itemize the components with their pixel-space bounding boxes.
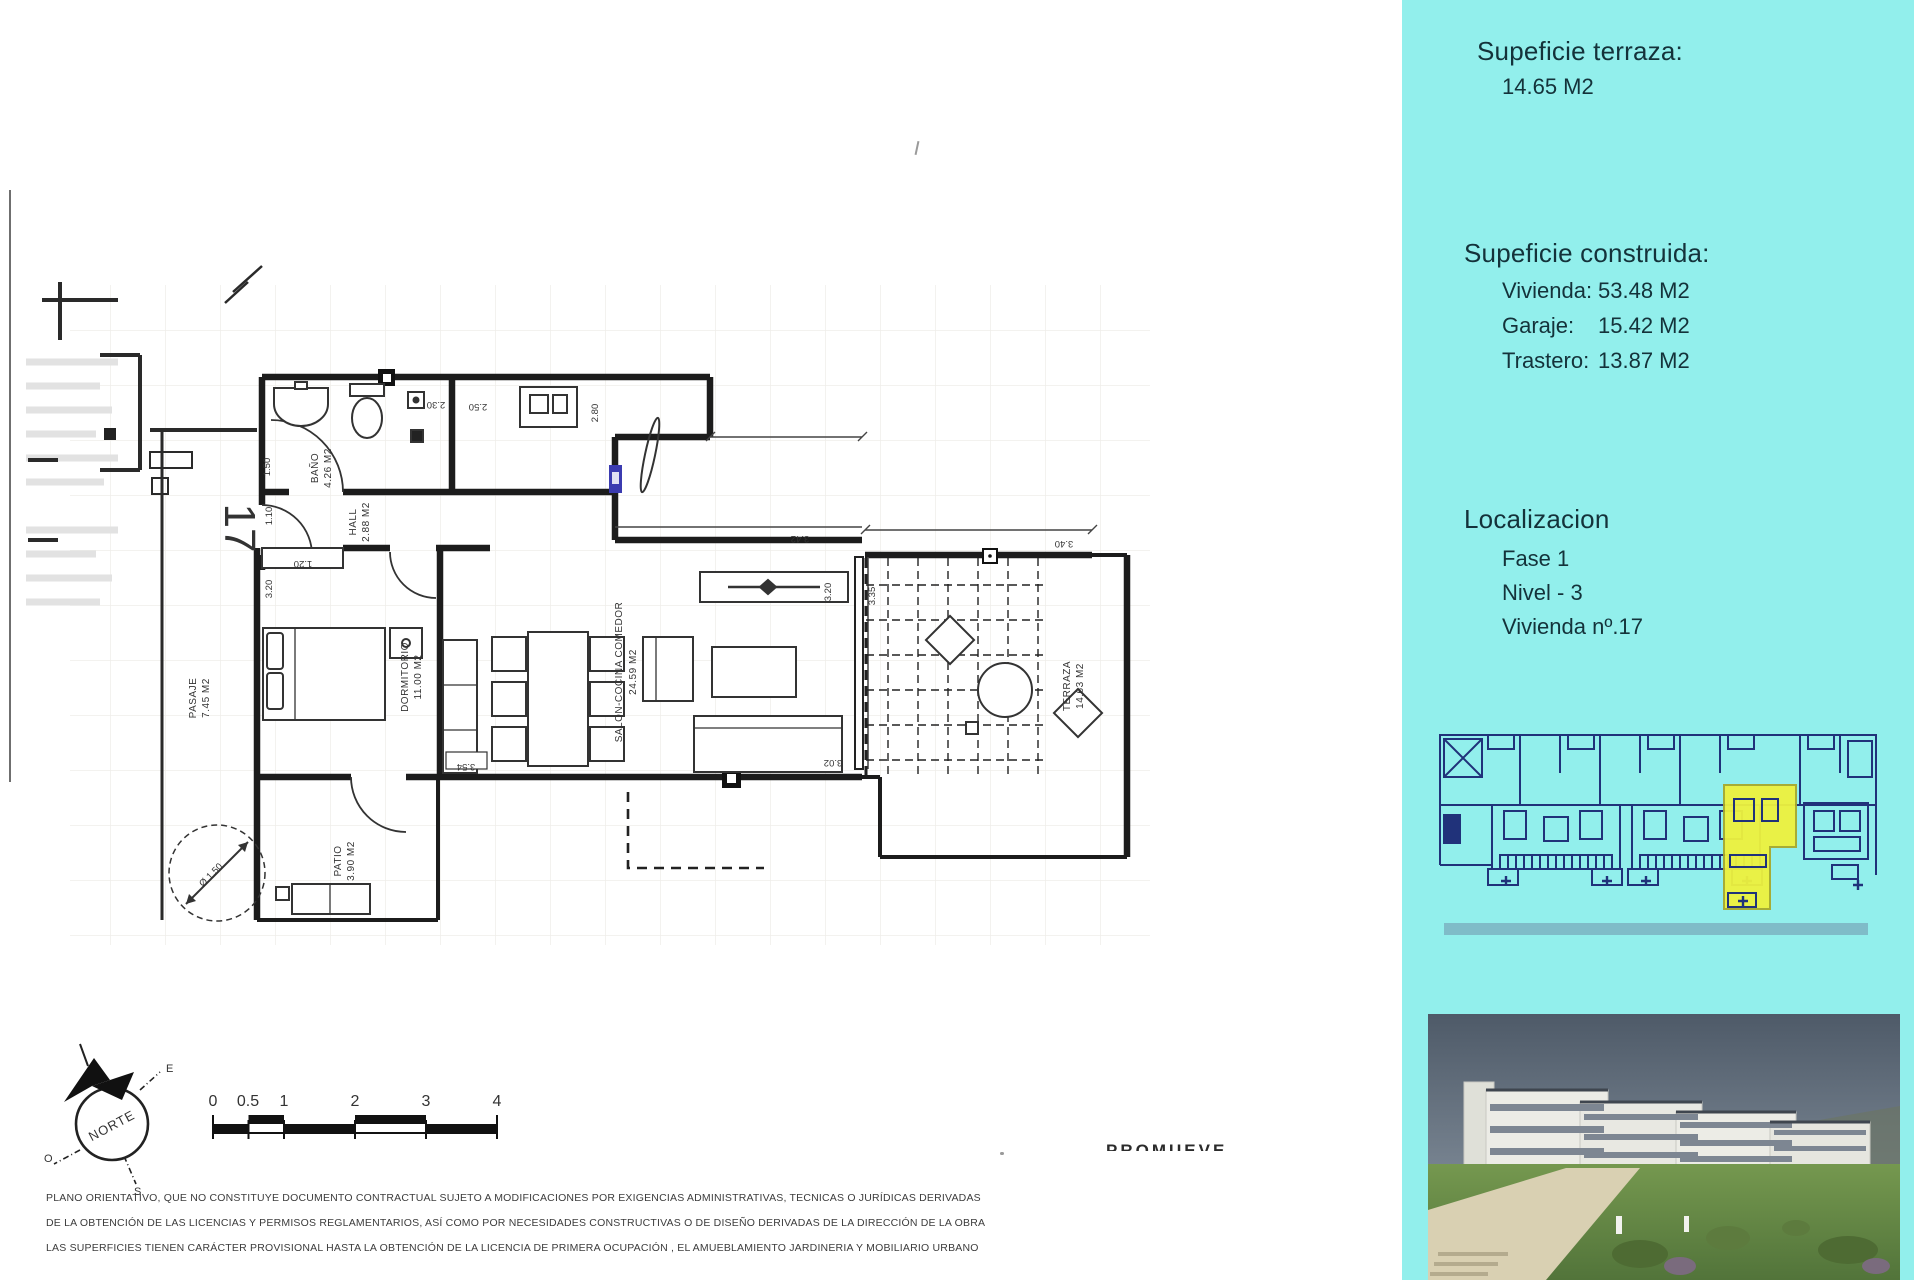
scale-label-3: 3 <box>422 1093 431 1110</box>
dim-120: 1.20 <box>294 558 313 569</box>
row-value: 13.87 M2 <box>1598 348 1690 374</box>
site-road-band <box>1444 923 1868 935</box>
sliding-door <box>855 557 863 769</box>
plan-sheet-page: BAÑO 4.26 M2 HALL 2.88 M2 DORMITORIO 11.… <box>0 0 1920 1280</box>
dim-302: 3.02 <box>824 757 843 768</box>
info-sidebar: Supeficie terraza: 14.65 M2 Supeficie co… <box>1402 0 1914 1280</box>
row-value: 53.48 M2 <box>1598 278 1690 304</box>
dim-354: 3.54 <box>457 761 476 772</box>
room-label-bano: BAÑO <box>308 453 321 483</box>
construida-title: Supeficie construida: <box>1464 238 1710 269</box>
kitchen-counter-top <box>520 387 577 427</box>
room-area-salon: 24.59 M2 <box>628 649 639 695</box>
building-render-image <box>1428 1014 1900 1280</box>
disclaimer-line-1: PLANO ORIENTATIVO, QUE NO CONSTITUYE DOC… <box>46 1186 826 1211</box>
construida-row-garaje: Garaje: 15.42 M2 <box>1502 313 1690 339</box>
survey-grid <box>70 285 1150 945</box>
window-marker-core <box>612 472 619 484</box>
scale-label-05: 0.5 <box>237 1093 259 1110</box>
dim-340: 3.40 <box>1055 538 1074 549</box>
scale-bar: 0 0.5 1 2 3 4 <box>205 1090 515 1154</box>
room-area-bano: 4.26 M2 <box>323 448 334 488</box>
promueve-label-clipped: PROMUEVE <box>1106 1141 1266 1151</box>
room-label-salon: SALON-COCINA COMEDOR <box>614 602 625 743</box>
dim-342: 3.42 <box>791 533 810 544</box>
disclaimer-text: PLANO ORIENTATIVO, QUE NO CONSTITUYE DOC… <box>46 1186 826 1261</box>
scale-label-4: 4 <box>493 1093 502 1110</box>
room-label-dormitorio: DORMITORIO <box>400 642 411 712</box>
unit-number: 17 <box>215 504 264 553</box>
dim-280: 2.80 <box>590 404 601 423</box>
row-label: Vivienda: <box>1502 278 1598 304</box>
row-label: Garaje: <box>1502 313 1598 339</box>
dim-250: 2.50 <box>469 401 488 412</box>
room-label-terraza: TERRAZA <box>1062 661 1073 711</box>
dim-110: 1.10 <box>264 507 275 526</box>
terraza-value: 14.65 M2 <box>1502 74 1594 100</box>
localizacion-fase: Fase 1 <box>1502 546 1569 572</box>
localizacion-nivel: Nivel - 3 <box>1502 580 1583 606</box>
scale-label-0: 0 <box>209 1093 218 1110</box>
localizacion-title: Localizacion <box>1464 504 1610 535</box>
scale-label-2: 2 <box>351 1093 360 1110</box>
terraza-title: Supeficie terraza: <box>1477 36 1683 67</box>
localizacion-vivienda: Vivienda nº.17 <box>1502 614 1643 640</box>
compass-e-label: E <box>166 1063 173 1075</box>
floor-plan-drawing: BAÑO 4.26 M2 HALL 2.88 M2 DORMITORIO 11.… <box>0 0 1404 1280</box>
site-key-plan <box>1428 715 1888 950</box>
dim-320-left: 3.20 <box>264 580 275 599</box>
disclaimer-line-2: DE LA OBTENCIÓN DE LAS LICENCIAS Y PERMI… <box>46 1211 826 1236</box>
room-label-hall: HALL <box>348 508 359 535</box>
compass-o-label: O <box>44 1153 53 1165</box>
disclaimer-line-3: LAS SUPERFICIES TIENEN CARÁCTER PROVISIO… <box>46 1236 826 1261</box>
room-area-dormitorio: 11.00 M2 <box>413 655 424 700</box>
scale-label-1: 1 <box>280 1093 289 1110</box>
room-area-pasaje: 7.45 M2 <box>201 678 212 718</box>
row-value: 15.42 M2 <box>1598 313 1690 339</box>
room-area-patio: 3.90 M2 <box>346 841 357 881</box>
room-label-pasaje: PASAJE <box>188 678 199 719</box>
compass-rose: NORTE E O S <box>42 1038 182 1198</box>
room-area-terraza: 14.63 M2 <box>1075 663 1086 709</box>
dim-320-right: 3.20 <box>823 583 834 602</box>
room-area-hall: 2.88 M2 <box>361 502 372 542</box>
dim-150: 1.50 <box>262 458 273 477</box>
construida-row-trastero: Trastero: 13.87 M2 <box>1502 348 1690 374</box>
row-label: Trastero: <box>1502 348 1598 374</box>
dim-230: 2.30 <box>427 399 446 410</box>
construida-row-vivienda: Vivienda: 53.48 M2 <box>1502 278 1690 304</box>
dim-335: 3.35 <box>867 587 878 606</box>
room-label-patio: PATIO <box>333 845 344 876</box>
